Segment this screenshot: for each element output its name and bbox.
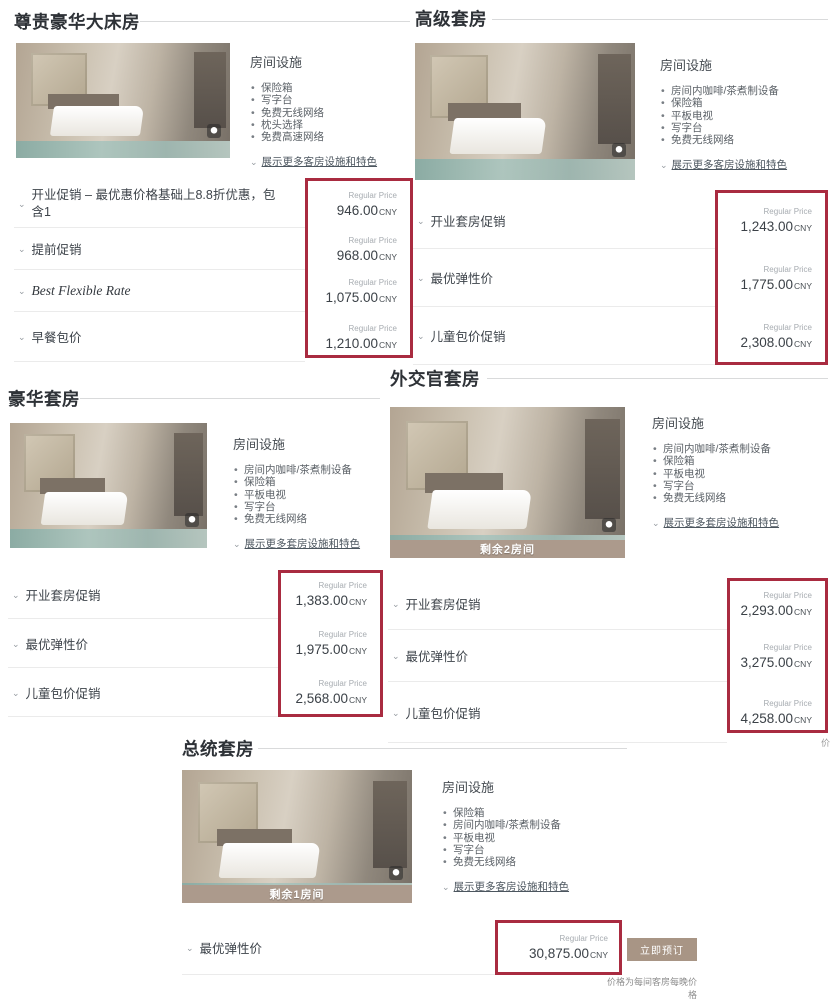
regular-price-label: Regular Price xyxy=(319,630,367,639)
rate-name[interactable]: ⌄最优弹性价 xyxy=(413,249,715,307)
title-divider xyxy=(487,378,828,379)
regular-price-label: Regular Price xyxy=(349,191,397,200)
wardrobe xyxy=(174,433,204,516)
currency-label: CNY xyxy=(794,607,812,617)
show-more-link[interactable]: ⌄展示更多客房设施和特色 xyxy=(250,154,377,169)
amenity-item: 免费高速网络 xyxy=(250,131,402,143)
amenity-item: 免费无线网络 xyxy=(233,513,391,525)
amenity-item: 房间内咖啡/茶煮制设备 xyxy=(660,85,828,97)
amenities-list: 保险箱 写字台 免费无线网络 枕头选择 免费高速网络 xyxy=(250,82,402,143)
currency-label: CNY xyxy=(379,207,397,217)
price-cell: Regular Price946.00CNY xyxy=(305,180,413,228)
rate-row: ⌄Best Flexible Rate Regular Price1,075.0… xyxy=(14,270,413,312)
amenity-item: 平板电视 xyxy=(660,110,828,122)
amenity-item: 写字台 xyxy=(250,94,402,106)
rates-table: ⌄开业套房促销 Regular Price1,243.00CNY ⌄最优弹性价 … xyxy=(413,192,828,365)
price-cell: Regular Price2,568.00CNY xyxy=(278,668,383,717)
chevron-down-icon: ⌄ xyxy=(250,157,258,167)
rug xyxy=(10,529,207,548)
regular-price-label: Regular Price xyxy=(319,581,367,590)
apple-logo-icon xyxy=(612,143,626,157)
price-cell: Regular Price968.00CNY xyxy=(305,228,413,270)
price-cell: Regular Price1,210.00CNY xyxy=(305,312,413,362)
chevron-down-icon: ⌄ xyxy=(12,639,20,650)
currency-label: CNY xyxy=(794,339,812,349)
amenity-item: 保险箱 xyxy=(652,455,812,467)
chevron-down-icon: ⌄ xyxy=(652,518,660,528)
chevron-down-icon: ⌄ xyxy=(442,882,450,892)
bed xyxy=(450,118,547,154)
price-value: 30,875.00CNY xyxy=(529,946,608,961)
price-cell: Regular Price1,243.00CNY xyxy=(715,192,828,249)
chevron-down-icon: ⌄ xyxy=(18,199,26,210)
rates-table: ⌄开业套房促销 Regular Price2,293.00CNY ⌄最优弹性价 … xyxy=(388,578,828,743)
chevron-down-icon: ⌄ xyxy=(12,688,20,699)
amenity-item: 平板电视 xyxy=(442,832,602,844)
price-value: 968.00CNY xyxy=(337,248,397,263)
price-value: 4,258.00CNY xyxy=(740,711,812,726)
price-cell: Regular Price3,275.00CNY xyxy=(727,630,828,682)
show-more-link[interactable]: ⌄展示更多套房设施和特色 xyxy=(233,536,360,551)
rate-row: ⌄儿童包价促销 Regular Price2,308.00CNY xyxy=(413,307,828,365)
currency-label: CNY xyxy=(794,281,812,291)
amenity-item: 免费无线网络 xyxy=(250,107,402,119)
currency-label: CNY xyxy=(794,715,812,725)
amenities-header: 房间设施 xyxy=(652,413,812,432)
amenity-item: 房间内咖啡/茶煮制设备 xyxy=(652,443,812,455)
rate-name[interactable]: ⌄最优弹性价 xyxy=(388,630,727,682)
book-now-button[interactable]: 立即预订 xyxy=(627,938,697,961)
chevron-down-icon: ⌄ xyxy=(233,539,241,549)
rate-row: ⌄最优弹性价 Regular Price3,275.00CNY xyxy=(388,630,828,682)
rate-name[interactable]: ⌄儿童包价促销 xyxy=(8,668,278,717)
regular-price-label: Regular Price xyxy=(764,699,812,708)
rooms-left-badge: 剩余2房间 xyxy=(390,540,625,558)
price-value: 1,243.00CNY xyxy=(740,219,812,234)
rates-table: ⌄开业促销 – 最优惠价格基础上8.8折优惠，包含1 Regular Price… xyxy=(14,180,413,362)
room-photo xyxy=(415,43,635,180)
currency-label: CNY xyxy=(379,252,397,262)
title-divider xyxy=(140,21,410,22)
room-photo: 剩余1房间 xyxy=(182,770,412,903)
price-value: 2,308.00CNY xyxy=(740,335,812,350)
amenity-item: 平板电视 xyxy=(233,489,391,501)
regular-price-label: Regular Price xyxy=(319,679,367,688)
rate-row: ⌄开业套房促销 Regular Price1,383.00CNY xyxy=(8,570,383,619)
apple-logo-icon xyxy=(207,124,221,138)
rug xyxy=(415,159,635,180)
price-value: 2,293.00CNY xyxy=(740,603,812,618)
amenity-item: 保险箱 xyxy=(250,82,402,94)
chevron-down-icon: ⌄ xyxy=(392,599,400,610)
rate-name[interactable]: ⌄开业套房促销 xyxy=(413,192,715,249)
price-value: 2,568.00CNY xyxy=(295,691,367,706)
price-value: 3,275.00CNY xyxy=(740,655,812,670)
rate-row: ⌄儿童包价促销 Regular Price4,258.00CNY xyxy=(388,682,828,743)
currency-label: CNY xyxy=(349,695,367,705)
amenity-item: 保险箱 xyxy=(442,807,602,819)
amenities-panel: 房间设施 保险箱 房间内咖啡/茶煮制设备 平板电视 写字台 免费无线网络 ⌄展示… xyxy=(442,777,602,895)
chevron-down-icon: ⌄ xyxy=(18,332,26,343)
room-title: 高级套房 xyxy=(415,6,487,31)
chevron-down-icon: ⌄ xyxy=(12,590,20,601)
price-value: 1,383.00CNY xyxy=(295,593,367,608)
rate-name[interactable]: ⌄开业套房促销 xyxy=(8,570,278,619)
apple-logo-icon xyxy=(185,513,199,527)
amenities-list: 房间内咖啡/茶煮制设备 保险箱 平板电视 写字台 免费无线网络 xyxy=(233,464,391,525)
amenities-panel: 房间设施 保险箱 写字台 免费无线网络 枕头选择 免费高速网络 ⌄展示更多客房设… xyxy=(250,52,402,170)
price-cell: Regular Price1,383.00CNY xyxy=(278,570,383,619)
bed xyxy=(219,843,320,878)
show-more-label: 展示更多套房设施和特色 xyxy=(664,517,780,529)
amenity-item: 保险箱 xyxy=(660,97,828,109)
rate-row: ⌄开业套房促销 Regular Price1,243.00CNY xyxy=(413,192,828,249)
amenity-item: 写字台 xyxy=(442,844,602,856)
apple-logo-icon xyxy=(389,866,403,880)
amenity-item: 保险箱 xyxy=(233,476,391,488)
amenities-list: 保险箱 房间内咖啡/茶煮制设备 平板电视 写字台 免费无线网络 xyxy=(442,807,602,868)
bed xyxy=(50,106,144,136)
chevron-down-icon: ⌄ xyxy=(417,216,425,227)
currency-label: CNY xyxy=(794,223,812,233)
currency-label: CNY xyxy=(590,950,608,960)
regular-price-label: Regular Price xyxy=(764,591,812,600)
room-photo: 剩余2房间 xyxy=(390,407,625,558)
room-title: 豪华套房 xyxy=(8,386,80,411)
show-more-label: 展示更多套房设施和特色 xyxy=(245,538,361,550)
show-more-link[interactable]: ⌄展示更多客房设施和特色 xyxy=(442,879,569,894)
price-cell: Regular Price1,075.00CNY xyxy=(305,270,413,312)
regular-price-label: Regular Price xyxy=(764,265,812,274)
price-value: 946.00CNY xyxy=(337,203,397,218)
rates-table: ⌄开业套房促销 Regular Price1,383.00CNY ⌄最优弹性价 … xyxy=(8,570,383,717)
regular-price-label: Regular Price xyxy=(349,324,397,333)
amenity-item: 免费无线网络 xyxy=(660,134,828,146)
chevron-down-icon: ⌄ xyxy=(18,244,26,255)
amenity-item: 写字台 xyxy=(652,480,812,492)
title-divider xyxy=(258,748,627,749)
amenity-item: 枕头选择 xyxy=(250,119,402,131)
rate-name[interactable]: ⌄开业促销 – 最优惠价格基础上8.8折优惠，包含1 xyxy=(14,180,305,228)
rooms-left-badge: 剩余1房间 xyxy=(182,885,412,903)
amenity-item: 房间内咖啡/茶煮制设备 xyxy=(442,819,602,831)
show-more-label: 展示更多客房设施和特色 xyxy=(454,881,570,893)
rate-name[interactable]: ⌄最优弹性价 xyxy=(182,920,495,975)
apple-logo-icon xyxy=(602,518,616,532)
amenities-header: 房间设施 xyxy=(233,434,391,453)
rate-name[interactable]: ⌄Best Flexible Rate xyxy=(14,270,305,312)
amenity-item: 免费无线网络 xyxy=(442,856,602,868)
bed xyxy=(41,492,128,525)
room-title: 总统套房 xyxy=(182,736,254,761)
room-title: 尊贵豪华大床房 xyxy=(14,9,140,34)
amenities-header: 房间设施 xyxy=(660,55,828,74)
rate-name[interactable]: ⌄最优弹性价 xyxy=(8,619,278,668)
regular-price-label: Regular Price xyxy=(349,236,397,245)
show-more-link[interactable]: ⌄展示更多套房设施和特色 xyxy=(652,515,779,530)
chevron-down-icon: ⌄ xyxy=(186,943,194,954)
rates-table: ⌄最优弹性价 Regular Price30,875.00CNY xyxy=(182,920,622,975)
price-value: 1,975.00CNY xyxy=(295,642,367,657)
room-photo xyxy=(10,423,207,548)
bed xyxy=(427,490,531,529)
currency-label: CNY xyxy=(349,597,367,607)
regular-price-label: Regular Price xyxy=(764,207,812,216)
amenities-header: 房间设施 xyxy=(250,52,402,71)
amenities-list: 房间内咖啡/茶煮制设备 保险箱 平板电视 写字台 免费无线网络 xyxy=(660,85,828,146)
rate-row: ⌄开业套房促销 Regular Price2,293.00CNY xyxy=(388,578,828,630)
price-cell: Regular Price4,258.00CNY xyxy=(727,682,828,743)
price-value: 1,775.00CNY xyxy=(740,277,812,292)
chevron-down-icon: ⌄ xyxy=(18,286,26,297)
regular-price-label: Regular Price xyxy=(764,643,812,652)
price-per-night-note: 价格为每间客房每晚价格 xyxy=(600,975,697,999)
price-cell: Regular Price2,308.00CNY xyxy=(715,307,828,365)
rug xyxy=(16,141,230,158)
amenities-list: 房间内咖啡/茶煮制设备 保险箱 平板电视 写字台 免费无线网络 xyxy=(652,443,812,504)
wardrobe xyxy=(585,419,620,519)
price-cell: Regular Price2,293.00CNY xyxy=(727,578,828,630)
chevron-down-icon: ⌄ xyxy=(417,331,425,342)
wardrobe xyxy=(598,54,631,144)
currency-label: CNY xyxy=(379,294,397,304)
amenity-item: 免费无线网络 xyxy=(652,492,812,504)
chevron-down-icon: ⌄ xyxy=(660,160,668,170)
wardrobe xyxy=(194,52,226,128)
rate-row: ⌄最优弹性价 Regular Price1,775.00CNY xyxy=(413,249,828,307)
price-value: 1,075.00CNY xyxy=(325,290,397,305)
regular-price-label: Regular Price xyxy=(349,278,397,287)
wardrobe xyxy=(373,781,408,869)
room-title: 外交官套房 xyxy=(390,366,480,391)
amenity-item: 房间内咖啡/茶煮制设备 xyxy=(233,464,391,476)
price-cell: Regular Price1,975.00CNY xyxy=(278,619,383,668)
regular-price-label: Regular Price xyxy=(560,934,608,943)
show-more-label: 展示更多客房设施和特色 xyxy=(672,159,788,171)
amenities-panel: 房间设施 房间内咖啡/茶煮制设备 保险箱 平板电视 写字台 免费无线网络 ⌄展示… xyxy=(233,434,391,552)
rate-row: ⌄开业促销 – 最优惠价格基础上8.8折优惠，包含1 Regular Price… xyxy=(14,180,413,228)
chevron-down-icon: ⌄ xyxy=(392,708,400,719)
title-divider xyxy=(80,398,380,399)
rate-name[interactable]: ⌄儿童包价促销 xyxy=(413,307,715,365)
amenity-item: 写字台 xyxy=(660,122,828,134)
chevron-down-icon: ⌄ xyxy=(417,273,425,284)
rate-row: ⌄儿童包价促销 Regular Price2,568.00CNY xyxy=(8,668,383,717)
rate-name[interactable]: ⌄提前促销 xyxy=(14,228,305,270)
price-cell: Regular Price30,875.00CNY xyxy=(495,920,622,975)
amenities-header: 房间设施 xyxy=(442,777,602,796)
rate-row: ⌄提前促销 Regular Price968.00CNY xyxy=(14,228,413,270)
amenities-panel: 房间设施 房间内咖啡/茶煮制设备 保险箱 平板电视 写字台 免费无线网络 ⌄展示… xyxy=(660,55,828,173)
clipped-text-fragment: 价 xyxy=(821,736,830,749)
rate-name[interactable]: ⌄开业套房促销 xyxy=(388,578,727,630)
rate-name[interactable]: ⌄儿童包价促销 xyxy=(388,682,727,743)
currency-label: CNY xyxy=(349,646,367,656)
amenity-item: 写字台 xyxy=(233,501,391,513)
chevron-down-icon: ⌄ xyxy=(392,651,400,662)
show-more-label: 展示更多客房设施和特色 xyxy=(262,156,378,168)
rate-row: ⌄最优弹性价 Regular Price30,875.00CNY xyxy=(182,920,622,975)
rate-name[interactable]: ⌄早餐包价 xyxy=(14,312,305,362)
room-photo xyxy=(16,43,230,158)
rate-row: ⌄早餐包价 Regular Price1,210.00CNY xyxy=(14,312,413,362)
regular-price-label: Regular Price xyxy=(764,323,812,332)
currency-label: CNY xyxy=(379,340,397,350)
price-cell: Regular Price1,775.00CNY xyxy=(715,249,828,307)
amenity-item: 平板电视 xyxy=(652,468,812,480)
currency-label: CNY xyxy=(794,659,812,669)
title-divider xyxy=(492,19,828,20)
hotel-rooms-page: 尊贵豪华大床房 房间设施 保险箱 写字台 免费无线网络 枕头选择 免费高速网络 … xyxy=(0,0,830,999)
price-value: 1,210.00CNY xyxy=(325,336,397,351)
amenities-panel: 房间设施 房间内咖啡/茶煮制设备 保险箱 平板电视 写字台 免费无线网络 ⌄展示… xyxy=(652,413,812,531)
show-more-link[interactable]: ⌄展示更多客房设施和特色 xyxy=(660,157,787,172)
rate-row: ⌄最优弹性价 Regular Price1,975.00CNY xyxy=(8,619,383,668)
